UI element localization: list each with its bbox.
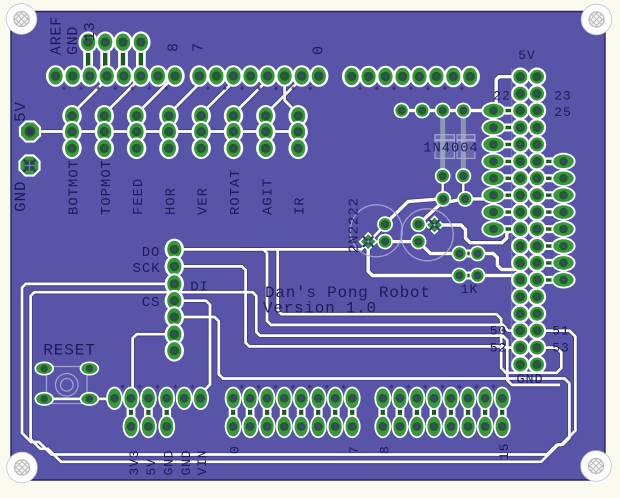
svg-text:DO: DO — [142, 245, 161, 261]
svg-text:TOPMOT: TOPMOT — [99, 159, 115, 215]
svg-text:7: 7 — [191, 42, 208, 52]
svg-text:GND: GND — [516, 373, 543, 388]
svg-text:GND: GND — [179, 450, 194, 476]
svg-text:DI: DI — [190, 280, 209, 296]
svg-text:HOR: HOR — [163, 187, 179, 215]
svg-text:0: 0 — [311, 45, 328, 55]
svg-text:1K: 1K — [461, 282, 478, 297]
svg-text:22: 22 — [493, 89, 510, 104]
svg-text:VER: VER — [196, 187, 212, 215]
svg-text:1N4004: 1N4004 — [423, 142, 478, 157]
svg-text:RESET: RESET — [43, 342, 96, 360]
svg-text:GND: GND — [161, 450, 176, 476]
svg-text:15: 15 — [497, 443, 512, 460]
svg-text:AREF: AREF — [49, 16, 66, 55]
svg-text:IR: IR — [293, 196, 309, 215]
svg-text:8: 8 — [166, 42, 183, 52]
svg-text:51: 51 — [552, 324, 569, 339]
svg-text:5V: 5V — [518, 48, 535, 63]
svg-text:3V3: 3V3 — [127, 450, 142, 476]
svg-text:0: 0 — [228, 445, 243, 454]
svg-text:52: 52 — [490, 341, 507, 356]
svg-text:Version 1.0: Version 1.0 — [263, 300, 377, 318]
svg-text:2N2222: 2N2222 — [347, 197, 363, 253]
svg-text:50: 50 — [490, 324, 507, 339]
svg-text:CS: CS — [142, 295, 161, 311]
svg-text:8: 8 — [377, 445, 392, 454]
svg-text:5V: 5V — [12, 101, 30, 122]
svg-text:53: 53 — [552, 341, 569, 356]
svg-text:GND: GND — [12, 180, 30, 212]
svg-text:FEED: FEED — [131, 178, 147, 215]
svg-text:SCK: SCK — [133, 261, 161, 277]
svg-text:AGIT: AGIT — [260, 178, 276, 215]
svg-text:25: 25 — [554, 105, 571, 120]
svg-text:ROTAT: ROTAT — [228, 168, 244, 215]
svg-text:23: 23 — [554, 89, 571, 104]
svg-text:VIN: VIN — [195, 450, 210, 476]
svg-text:GND: GND — [65, 26, 82, 55]
svg-text:BOTMOT: BOTMOT — [67, 159, 83, 215]
svg-text:5V: 5V — [144, 458, 159, 475]
svg-text:13: 13 — [82, 22, 99, 41]
svg-text:7: 7 — [347, 445, 362, 454]
